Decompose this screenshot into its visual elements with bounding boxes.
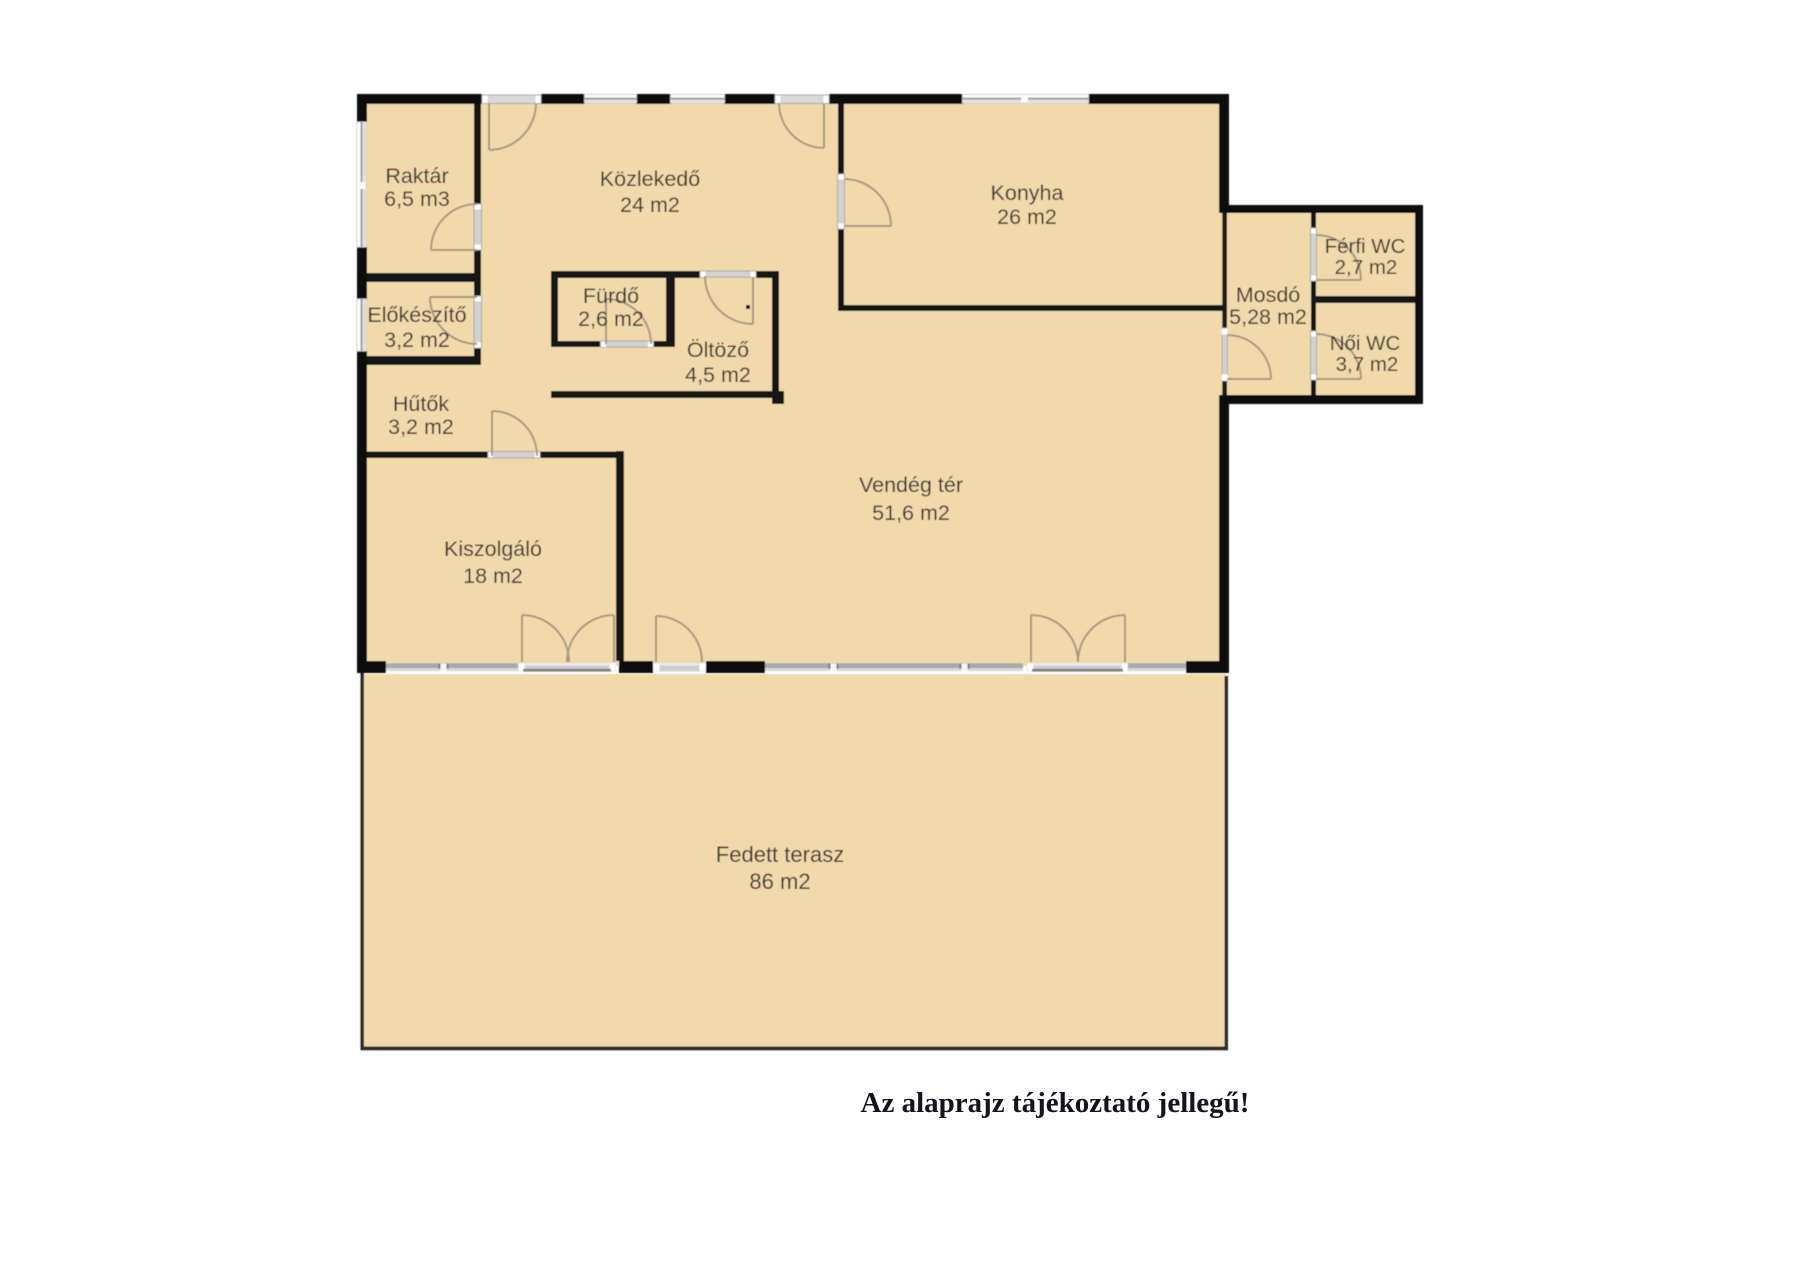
svg-text:Raktár: Raktár	[385, 164, 448, 188]
svg-text:Közlekedő: Közlekedő	[600, 167, 700, 191]
svg-text:24 m2: 24 m2	[620, 193, 680, 217]
svg-text:Előkészítő: Előkészítő	[367, 303, 466, 327]
svg-text:Kiszolgáló: Kiszolgáló	[444, 537, 542, 561]
svg-text:Öltöző: Öltöző	[687, 338, 749, 362]
svg-text:18 m2: 18 m2	[463, 564, 523, 588]
svg-text:6,5 m3: 6,5 m3	[384, 187, 450, 211]
svg-text:Női WC: Női WC	[1330, 332, 1401, 355]
svg-text:Az alaprajz tájékoztató jelleg: Az alaprajz tájékoztató jellegű!	[861, 1087, 1250, 1119]
svg-text:Vendég tér: Vendég tér	[859, 473, 963, 497]
svg-text:Fürdő: Fürdő	[583, 284, 639, 308]
svg-text:Férfi WC: Férfi WC	[1325, 235, 1406, 258]
svg-text:Mosdó: Mosdó	[1236, 283, 1301, 307]
svg-text:3,2 m2: 3,2 m2	[384, 328, 450, 352]
svg-text:2,6 m2: 2,6 m2	[578, 307, 644, 331]
svg-text:3,2 m2: 3,2 m2	[388, 415, 454, 439]
svg-text:4,5 m2: 4,5 m2	[685, 363, 751, 387]
svg-text:2,7 m2: 2,7 m2	[1335, 256, 1398, 279]
svg-text:86 m2: 86 m2	[749, 869, 810, 894]
svg-text:Hűtők: Hűtők	[393, 392, 449, 416]
svg-text:Fedett terasz: Fedett terasz	[716, 842, 844, 867]
svg-text:5,28 m2: 5,28 m2	[1229, 305, 1307, 329]
svg-text:3,7 m2: 3,7 m2	[1336, 353, 1399, 376]
svg-text:51,6 m2: 51,6 m2	[872, 501, 950, 525]
svg-text:26 m2: 26 m2	[997, 205, 1057, 229]
svg-text:Konyha: Konyha	[991, 181, 1064, 205]
